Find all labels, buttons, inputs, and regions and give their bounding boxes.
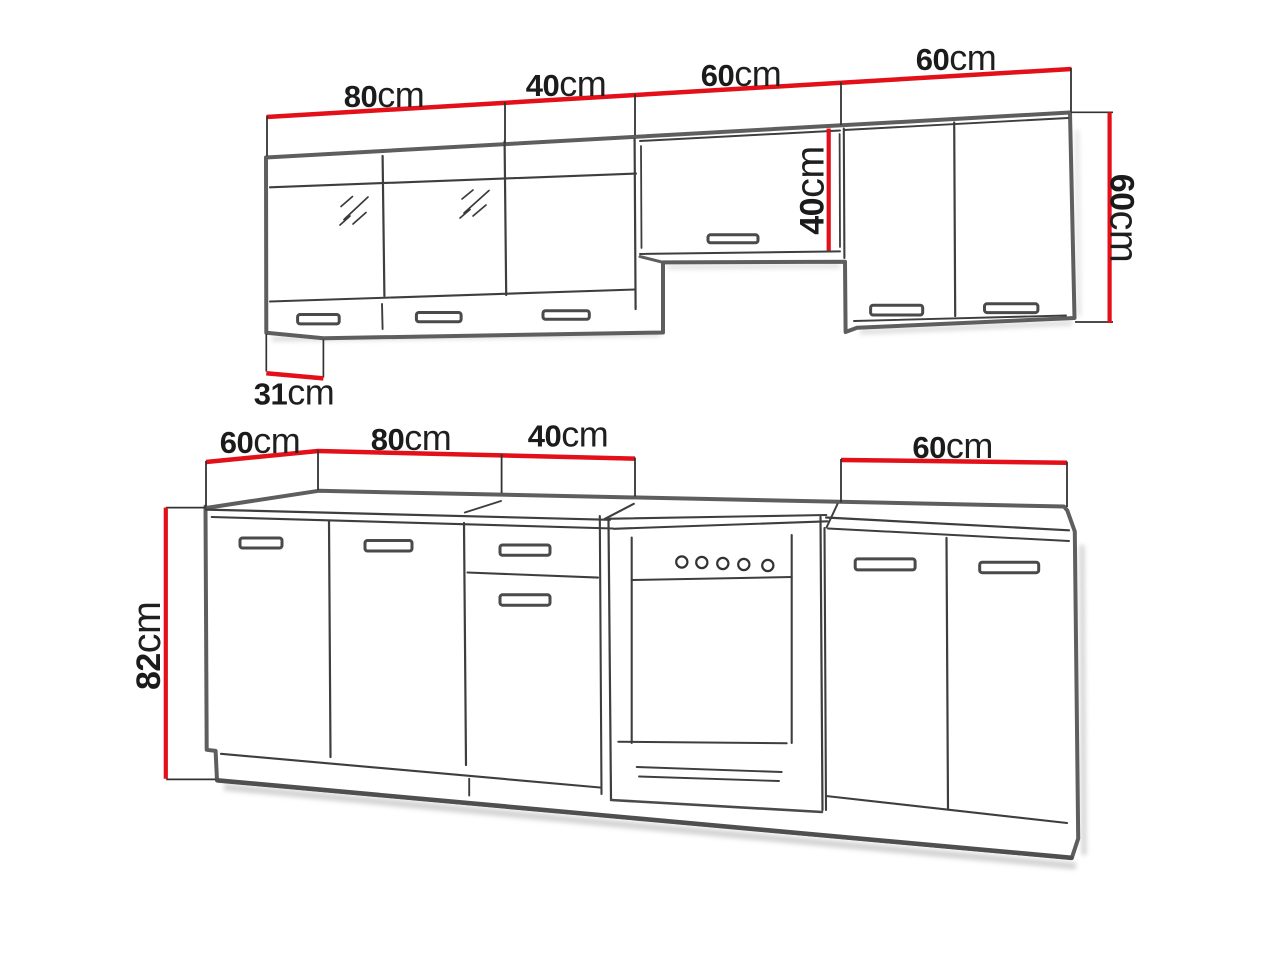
svg-text:40cm: 40cm xyxy=(526,63,606,104)
svg-text:60cm: 60cm xyxy=(916,37,996,78)
svg-text:82cm: 82cm xyxy=(125,602,169,690)
svg-text:40cm: 40cm xyxy=(528,414,608,455)
svg-text:80cm: 80cm xyxy=(344,74,424,115)
svg-text:60cm: 60cm xyxy=(1102,174,1146,262)
svg-text:60cm: 60cm xyxy=(220,420,300,461)
svg-text:40cm: 40cm xyxy=(789,146,833,234)
svg-text:80cm: 80cm xyxy=(371,417,451,458)
svg-text:60cm: 60cm xyxy=(701,53,781,94)
svg-text:31cm: 31cm xyxy=(254,372,334,413)
svg-text:60cm: 60cm xyxy=(912,425,992,466)
